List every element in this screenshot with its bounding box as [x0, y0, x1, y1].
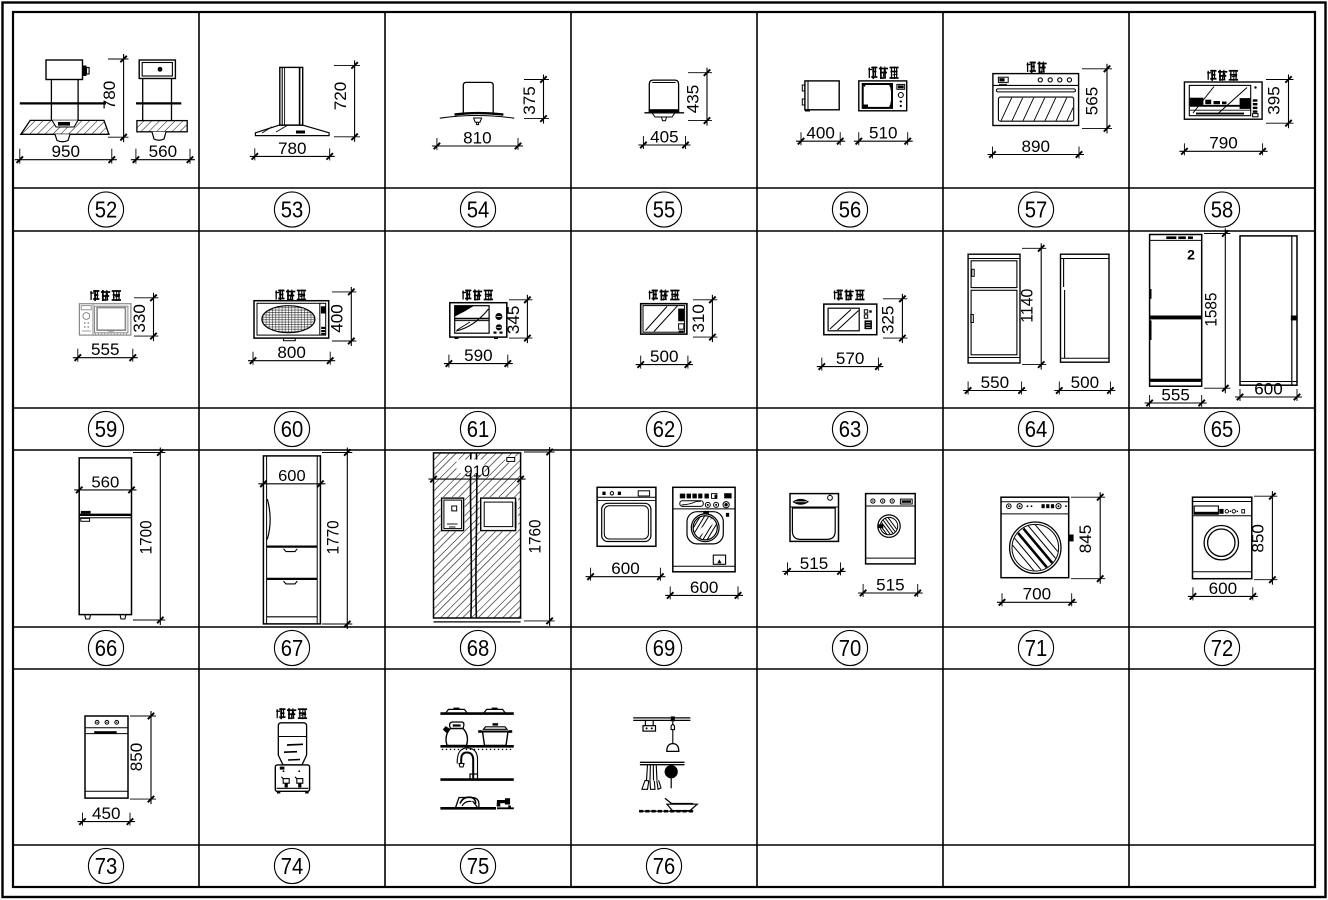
svg-text:345: 345 — [504, 306, 523, 335]
svg-text:950: 950 — [52, 142, 81, 161]
svg-text:845: 845 — [1076, 525, 1095, 554]
svg-text:76: 76 — [653, 853, 676, 879]
svg-text:450: 450 — [92, 804, 121, 823]
svg-text:1140: 1140 — [1018, 289, 1037, 323]
svg-text:515: 515 — [800, 554, 829, 573]
svg-text:68: 68 — [467, 635, 490, 661]
svg-text:600: 600 — [611, 559, 640, 578]
svg-text:62: 62 — [653, 416, 676, 442]
svg-text:70: 70 — [839, 635, 862, 661]
svg-text:67: 67 — [281, 635, 304, 661]
svg-text:52: 52 — [95, 197, 118, 223]
svg-text:64: 64 — [1025, 416, 1048, 442]
svg-text:66: 66 — [95, 635, 118, 661]
svg-text:400: 400 — [806, 124, 835, 143]
svg-text:405: 405 — [650, 127, 679, 146]
svg-text:60: 60 — [281, 416, 304, 442]
svg-text:590: 590 — [464, 346, 493, 365]
svg-text:800: 800 — [277, 343, 306, 362]
svg-text:890: 890 — [1022, 137, 1051, 156]
svg-text:780: 780 — [278, 139, 307, 158]
svg-text:510: 510 — [869, 124, 898, 143]
svg-text:61: 61 — [467, 416, 490, 442]
svg-text:850: 850 — [127, 743, 146, 772]
svg-text:555: 555 — [1161, 385, 1190, 404]
svg-text:63: 63 — [839, 416, 862, 442]
svg-text:56: 56 — [839, 197, 862, 223]
svg-text:59: 59 — [95, 416, 118, 442]
svg-text:600: 600 — [690, 578, 719, 597]
svg-text:65: 65 — [1211, 416, 1234, 442]
svg-text:1700: 1700 — [136, 520, 155, 554]
svg-text:560: 560 — [149, 142, 178, 161]
svg-text:565: 565 — [1083, 87, 1102, 116]
svg-text:310: 310 — [689, 304, 708, 333]
svg-text:500: 500 — [1071, 373, 1100, 392]
svg-text:570: 570 — [836, 349, 865, 368]
svg-text:550: 550 — [981, 373, 1010, 392]
svg-text:53: 53 — [281, 197, 304, 223]
svg-text:71: 71 — [1025, 635, 1048, 661]
svg-text:910: 910 — [464, 464, 490, 481]
svg-text:57: 57 — [1025, 197, 1048, 223]
svg-text:500: 500 — [650, 347, 679, 366]
svg-text:600: 600 — [1209, 579, 1238, 598]
svg-text:850: 850 — [1248, 524, 1267, 553]
svg-text:55: 55 — [653, 197, 676, 223]
svg-text:555: 555 — [91, 340, 120, 359]
svg-text:560: 560 — [91, 474, 119, 491]
svg-text:54: 54 — [467, 197, 490, 223]
svg-text:600: 600 — [1254, 379, 1283, 398]
svg-text:790: 790 — [1209, 134, 1238, 153]
svg-text:1770: 1770 — [323, 520, 342, 554]
svg-text:73: 73 — [95, 853, 118, 879]
svg-text:325: 325 — [879, 306, 898, 335]
svg-text:375: 375 — [520, 86, 539, 115]
svg-text:72: 72 — [1211, 635, 1234, 661]
svg-text:58: 58 — [1211, 197, 1234, 223]
svg-text:395: 395 — [1265, 86, 1284, 115]
svg-text:810: 810 — [463, 128, 492, 147]
svg-text:400: 400 — [328, 304, 347, 333]
svg-text:515: 515 — [876, 575, 905, 594]
svg-text:720: 720 — [331, 82, 350, 111]
svg-text:780: 780 — [100, 81, 119, 110]
svg-text:69: 69 — [653, 635, 676, 661]
svg-text:700: 700 — [1023, 585, 1052, 604]
svg-text:330: 330 — [130, 304, 149, 333]
svg-text:435: 435 — [684, 85, 703, 114]
svg-text:600: 600 — [278, 468, 306, 485]
svg-text:75: 75 — [467, 853, 490, 879]
svg-text:2: 2 — [1187, 247, 1195, 263]
svg-text:1585: 1585 — [1201, 293, 1220, 327]
svg-text:1760: 1760 — [526, 520, 545, 554]
svg-text:74: 74 — [281, 853, 304, 879]
